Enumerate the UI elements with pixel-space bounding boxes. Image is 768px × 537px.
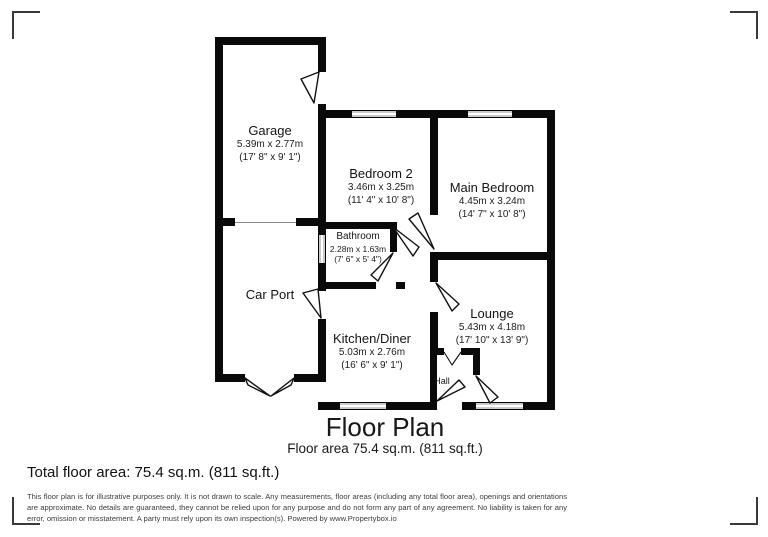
door-swing-hall-lounge [476,376,498,403]
garage-carport-divider-line [235,222,296,223]
room-name: Kitchen/Diner [333,331,411,347]
plan-subtitle: Floor area 75.4 sq.m. (811 sq.ft.) [287,441,483,456]
window-marker [352,110,396,118]
window-marker [318,235,326,263]
room-label-lounge: Lounge 5.43m x 4.18m (17' 10" x 13' 9") [456,306,529,347]
window-marker [340,402,386,410]
wall [318,282,376,289]
room-dim-metric: 2.28m x 1.63m [330,244,386,255]
room-name: Lounge [456,306,529,322]
room-label-carport: Car Port [246,287,294,303]
door-swings-layer [0,0,768,537]
wall [215,37,223,382]
door-swing-main-bedroom [409,213,434,249]
room-dim-imperial: (16' 6" x 9' 1") [333,360,411,373]
wall [390,222,397,252]
room-dim-metric: 4.45m x 3.24m [450,196,535,209]
room-label-garage: Garage 5.39m x 2.77m (17' 8" x 9' 1") [237,123,303,164]
room-label-bedroom2: Bedroom 2 3.46m x 3.25m (11' 4" x 10' 8"… [348,166,414,207]
wall [318,319,326,382]
door-swing-carport-right [271,378,294,396]
wall [318,104,326,222]
wall [294,374,326,382]
wall [430,252,555,260]
wall [215,374,245,382]
room-dim-imperial: (17' 8" x 9' 1") [237,152,303,165]
room-dim-imperial: (17' 10" x 13' 9") [456,335,529,348]
room-name: Bathroom [330,231,386,244]
room-dim-metric: 3.46m x 3.25m [348,182,414,195]
door-swing-garage [301,72,319,103]
room-dim-metric: 5.43m x 4.18m [456,322,529,335]
wall [547,110,555,410]
door-swing-carport-left [245,378,270,396]
corner-bracket-top-right [730,11,758,39]
wall [318,402,340,410]
window-marker [476,402,523,410]
wall [473,348,480,375]
room-name: Hall [434,376,450,387]
corner-bracket-top-left [12,11,40,39]
room-dim-metric: 5.03m x 2.76m [333,347,411,360]
room-label-kitchen-diner: Kitchen/Diner 5.03m x 2.76m (16' 6" x 9'… [333,331,411,372]
door-swing-hall-opening [444,352,461,365]
floor-plan-page: Garage 5.39m x 2.77m (17' 8" x 9' 1") Be… [0,0,768,537]
room-name: Car Port [246,287,294,303]
room-dim-imperial: (7' 6" x 5' 4") [330,254,386,265]
room-dim-metric: 5.39m x 2.77m [237,139,303,152]
wall [430,252,438,282]
wall [223,218,235,226]
room-label-bathroom: Bathroom 2.28m x 1.63m (7' 6" x 5' 4") [330,231,386,265]
window-marker [468,110,512,118]
door-swing-kitchen-carport [303,289,321,318]
room-dim-imperial: (14' 7" x 10' 8") [450,209,535,222]
wall [430,110,438,215]
plan-title: Floor Plan [326,412,445,443]
room-dim-imperial: (11' 4" x 10' 8") [348,195,414,208]
corner-bracket-bottom-right [730,497,758,525]
room-name: Garage [237,123,303,139]
wall [215,37,326,45]
wall [523,402,555,410]
wall [462,402,476,410]
room-name: Bedroom 2 [348,166,414,182]
disclaimer-text: This floor plan is for illustrative purp… [27,491,567,524]
wall [396,282,405,289]
total-floor-area: Total floor area: 75.4 sq.m. (811 sq.ft.… [27,464,279,481]
wall [318,222,392,229]
wall [430,312,438,352]
wall [296,218,318,226]
wall [386,402,437,410]
room-label-hall: Hall [434,376,450,387]
room-name: Main Bedroom [450,180,535,196]
wall [318,37,326,72]
room-label-main-bedroom: Main Bedroom 4.45m x 3.24m (14' 7" x 10'… [450,180,535,221]
